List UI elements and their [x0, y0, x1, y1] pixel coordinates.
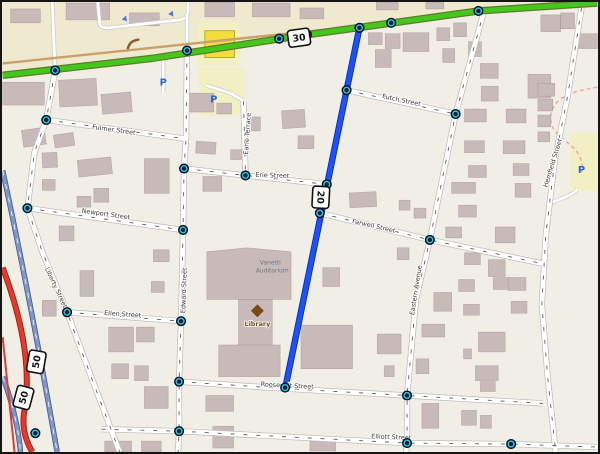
building: [480, 415, 491, 428]
building: [206, 396, 234, 412]
building: [459, 280, 475, 292]
building: [377, 334, 401, 354]
building: [53, 133, 74, 149]
building: [153, 250, 169, 262]
building: [454, 23, 467, 37]
building: [94, 188, 109, 202]
building: [213, 426, 234, 448]
building: [196, 141, 217, 154]
building: [298, 136, 314, 149]
building: [375, 50, 391, 68]
building: [422, 403, 439, 428]
building: [434, 292, 452, 311]
building: [101, 92, 132, 114]
route-shield-number: 30: [292, 32, 307, 45]
building: [323, 268, 340, 287]
map-canvas[interactable]: Fulmer StreetErie StreetNewport StreetEl…: [0, 0, 600, 454]
building: [578, 34, 598, 49]
building: [478, 332, 505, 352]
building: [475, 366, 498, 381]
building: [465, 253, 481, 265]
route-shield-number: 50: [31, 354, 44, 369]
building: [42, 300, 56, 316]
building: [205, 2, 235, 17]
building: [481, 86, 498, 101]
building: [11, 9, 41, 23]
building: [136, 327, 154, 342]
building: [144, 387, 168, 409]
building: [452, 182, 476, 193]
building: [397, 248, 409, 260]
building: [300, 8, 324, 19]
building: [203, 176, 222, 191]
street-label: Edward Street: [179, 267, 189, 313]
building: [515, 183, 531, 197]
building: [42, 152, 58, 168]
route-shield: 50: [26, 350, 46, 374]
building: [561, 13, 575, 29]
building: [538, 99, 553, 111]
building: [541, 15, 561, 32]
parking-icon: P: [578, 165, 585, 176]
building: [403, 33, 429, 52]
map-viewport[interactable]: Fulmer StreetErie StreetNewport StreetEl…: [2, 2, 598, 452]
building: [465, 109, 487, 122]
building: [151, 282, 164, 293]
route-shield-number: 20: [314, 190, 326, 204]
building: [77, 196, 91, 207]
building: [252, 3, 290, 17]
building: [66, 3, 110, 20]
building: [426, 2, 444, 9]
building: [385, 34, 400, 49]
auditorium-label-line1: Vanetti: [260, 260, 281, 267]
building: [495, 227, 515, 243]
building: [58, 78, 97, 107]
building: [384, 366, 394, 377]
building: [134, 366, 148, 381]
building: [42, 179, 55, 190]
building: [513, 164, 529, 176]
building: [80, 271, 94, 297]
route-shield: 20: [312, 186, 330, 209]
building: [112, 364, 129, 379]
library-label: Library: [244, 320, 271, 328]
building: [538, 115, 551, 127]
building: [349, 192, 377, 208]
building: [414, 208, 426, 218]
building: [538, 132, 550, 142]
building: [399, 200, 410, 210]
building: [480, 382, 495, 392]
building: [508, 278, 526, 291]
street-label: Erie Street: [255, 171, 290, 180]
building: [3, 82, 45, 105]
building: [480, 63, 498, 78]
building: [511, 301, 527, 313]
building: [462, 410, 477, 425]
building: [109, 327, 134, 352]
building: [310, 441, 336, 451]
building: [488, 260, 505, 277]
building: [376, 2, 398, 10]
building: [422, 324, 445, 337]
parking-icon: P: [210, 95, 217, 106]
building: [464, 349, 472, 359]
building: [77, 157, 112, 177]
building: [443, 49, 455, 63]
building: [282, 109, 306, 128]
building: [144, 159, 169, 194]
building: [437, 28, 450, 41]
parking-area: [571, 133, 598, 190]
building: [506, 109, 526, 123]
building: [459, 205, 477, 217]
building: [446, 227, 462, 238]
building: [59, 226, 74, 241]
auditorium-label-line2: Auditorium: [256, 268, 289, 275]
route-shield: 30: [287, 28, 311, 48]
building: [503, 141, 525, 154]
building: [469, 166, 487, 178]
building: [465, 141, 485, 153]
auditorium-building: [219, 345, 280, 377]
building: [141, 441, 161, 452]
parking-icon: P: [160, 78, 167, 89]
building: [368, 33, 382, 45]
building: [538, 83, 555, 96]
building: [464, 304, 480, 315]
building: [301, 325, 353, 369]
building: [416, 359, 429, 374]
building: [217, 103, 232, 114]
